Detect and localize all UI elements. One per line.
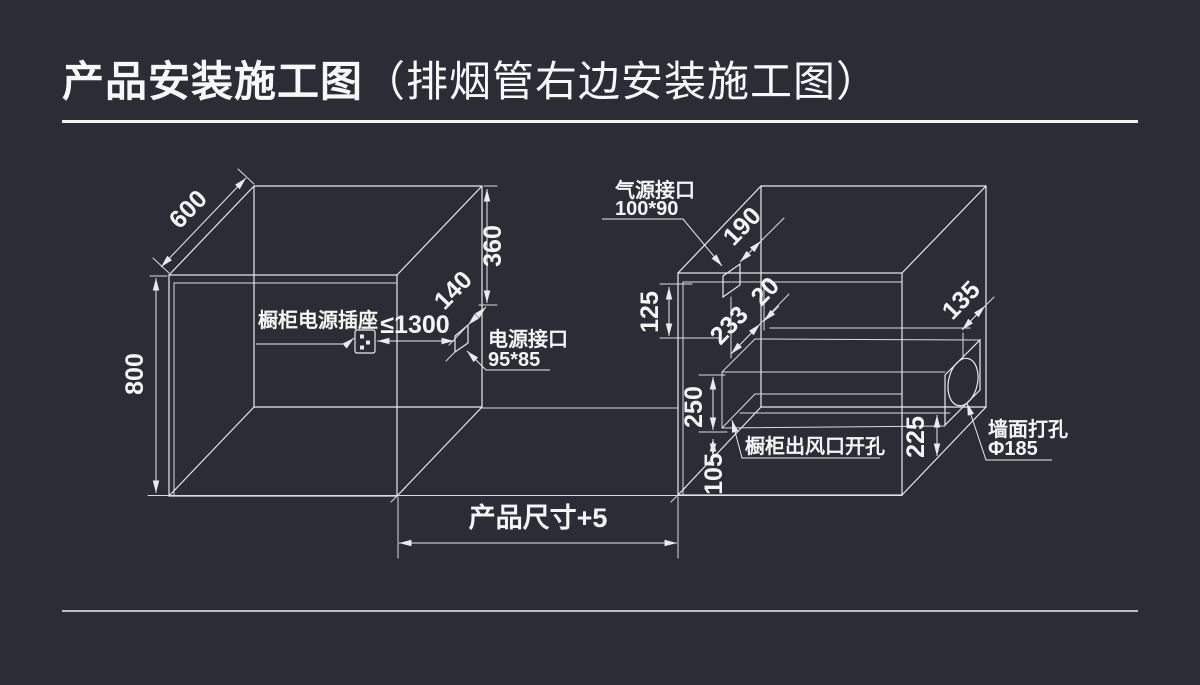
dim-duct-depth-233-20: 233 20	[705, 272, 789, 354]
power-socket-icon	[355, 330, 375, 353]
dim-depth-text: 600	[164, 185, 213, 234]
technical-drawing: 600 800 360 140 ≤1300 橱柜电源插	[0, 0, 1200, 685]
power-port-label: 电源接口	[488, 328, 568, 351]
dim-20-text: 20	[746, 272, 785, 311]
installation-diagram-page: 产品安装施工图（排烟管右边安装施工图）	[0, 0, 1200, 685]
dim-250-text: 250	[680, 386, 708, 428]
dim-top-to-port-360: 360	[479, 186, 507, 305]
dim-125-text: 125	[636, 291, 664, 333]
dim-gas-offset-190: 190	[718, 202, 784, 262]
dim-depth-600: 600	[153, 169, 254, 273]
dim-height-text: 800	[121, 353, 149, 395]
wall-hole-size: Φ185	[988, 438, 1038, 460]
dim-190-text: 190	[718, 202, 767, 251]
gas-port-callout: 气源接口 100*90	[602, 178, 722, 266]
outlet-callout: 橱柜出风口开孔	[732, 420, 885, 458]
dim-height-800: 800	[121, 276, 902, 496]
dim-duct-bottom-105: 105	[700, 439, 728, 495]
socket-callout: 橱柜电源插座	[256, 308, 378, 344]
dim-105-text: 105	[700, 453, 728, 495]
dim-socket-distance-1300: ≤1300	[377, 311, 454, 341]
dim-233-text: 233	[705, 301, 754, 350]
dim-140-text: 140	[429, 266, 478, 315]
gas-port-size: 100*90	[615, 198, 678, 220]
outlet-label: 橱柜出风口开孔	[745, 434, 885, 458]
dim-duct-height-250: 250	[680, 375, 727, 432]
dim-product-size-text: 产品尺寸+5	[469, 503, 608, 533]
power-port-size: 95*85	[488, 349, 540, 371]
dim-360-text: 360	[479, 225, 507, 267]
socket-label: 橱柜电源插座	[258, 308, 378, 332]
dim-1300-text: ≤1300	[380, 311, 449, 339]
dim-135-text: 135	[937, 276, 986, 326]
dim-hole-bottom-225: 225	[902, 413, 950, 458]
dim-product-size: 产品尺寸+5	[391, 487, 686, 558]
dim-225-text: 225	[902, 416, 930, 458]
